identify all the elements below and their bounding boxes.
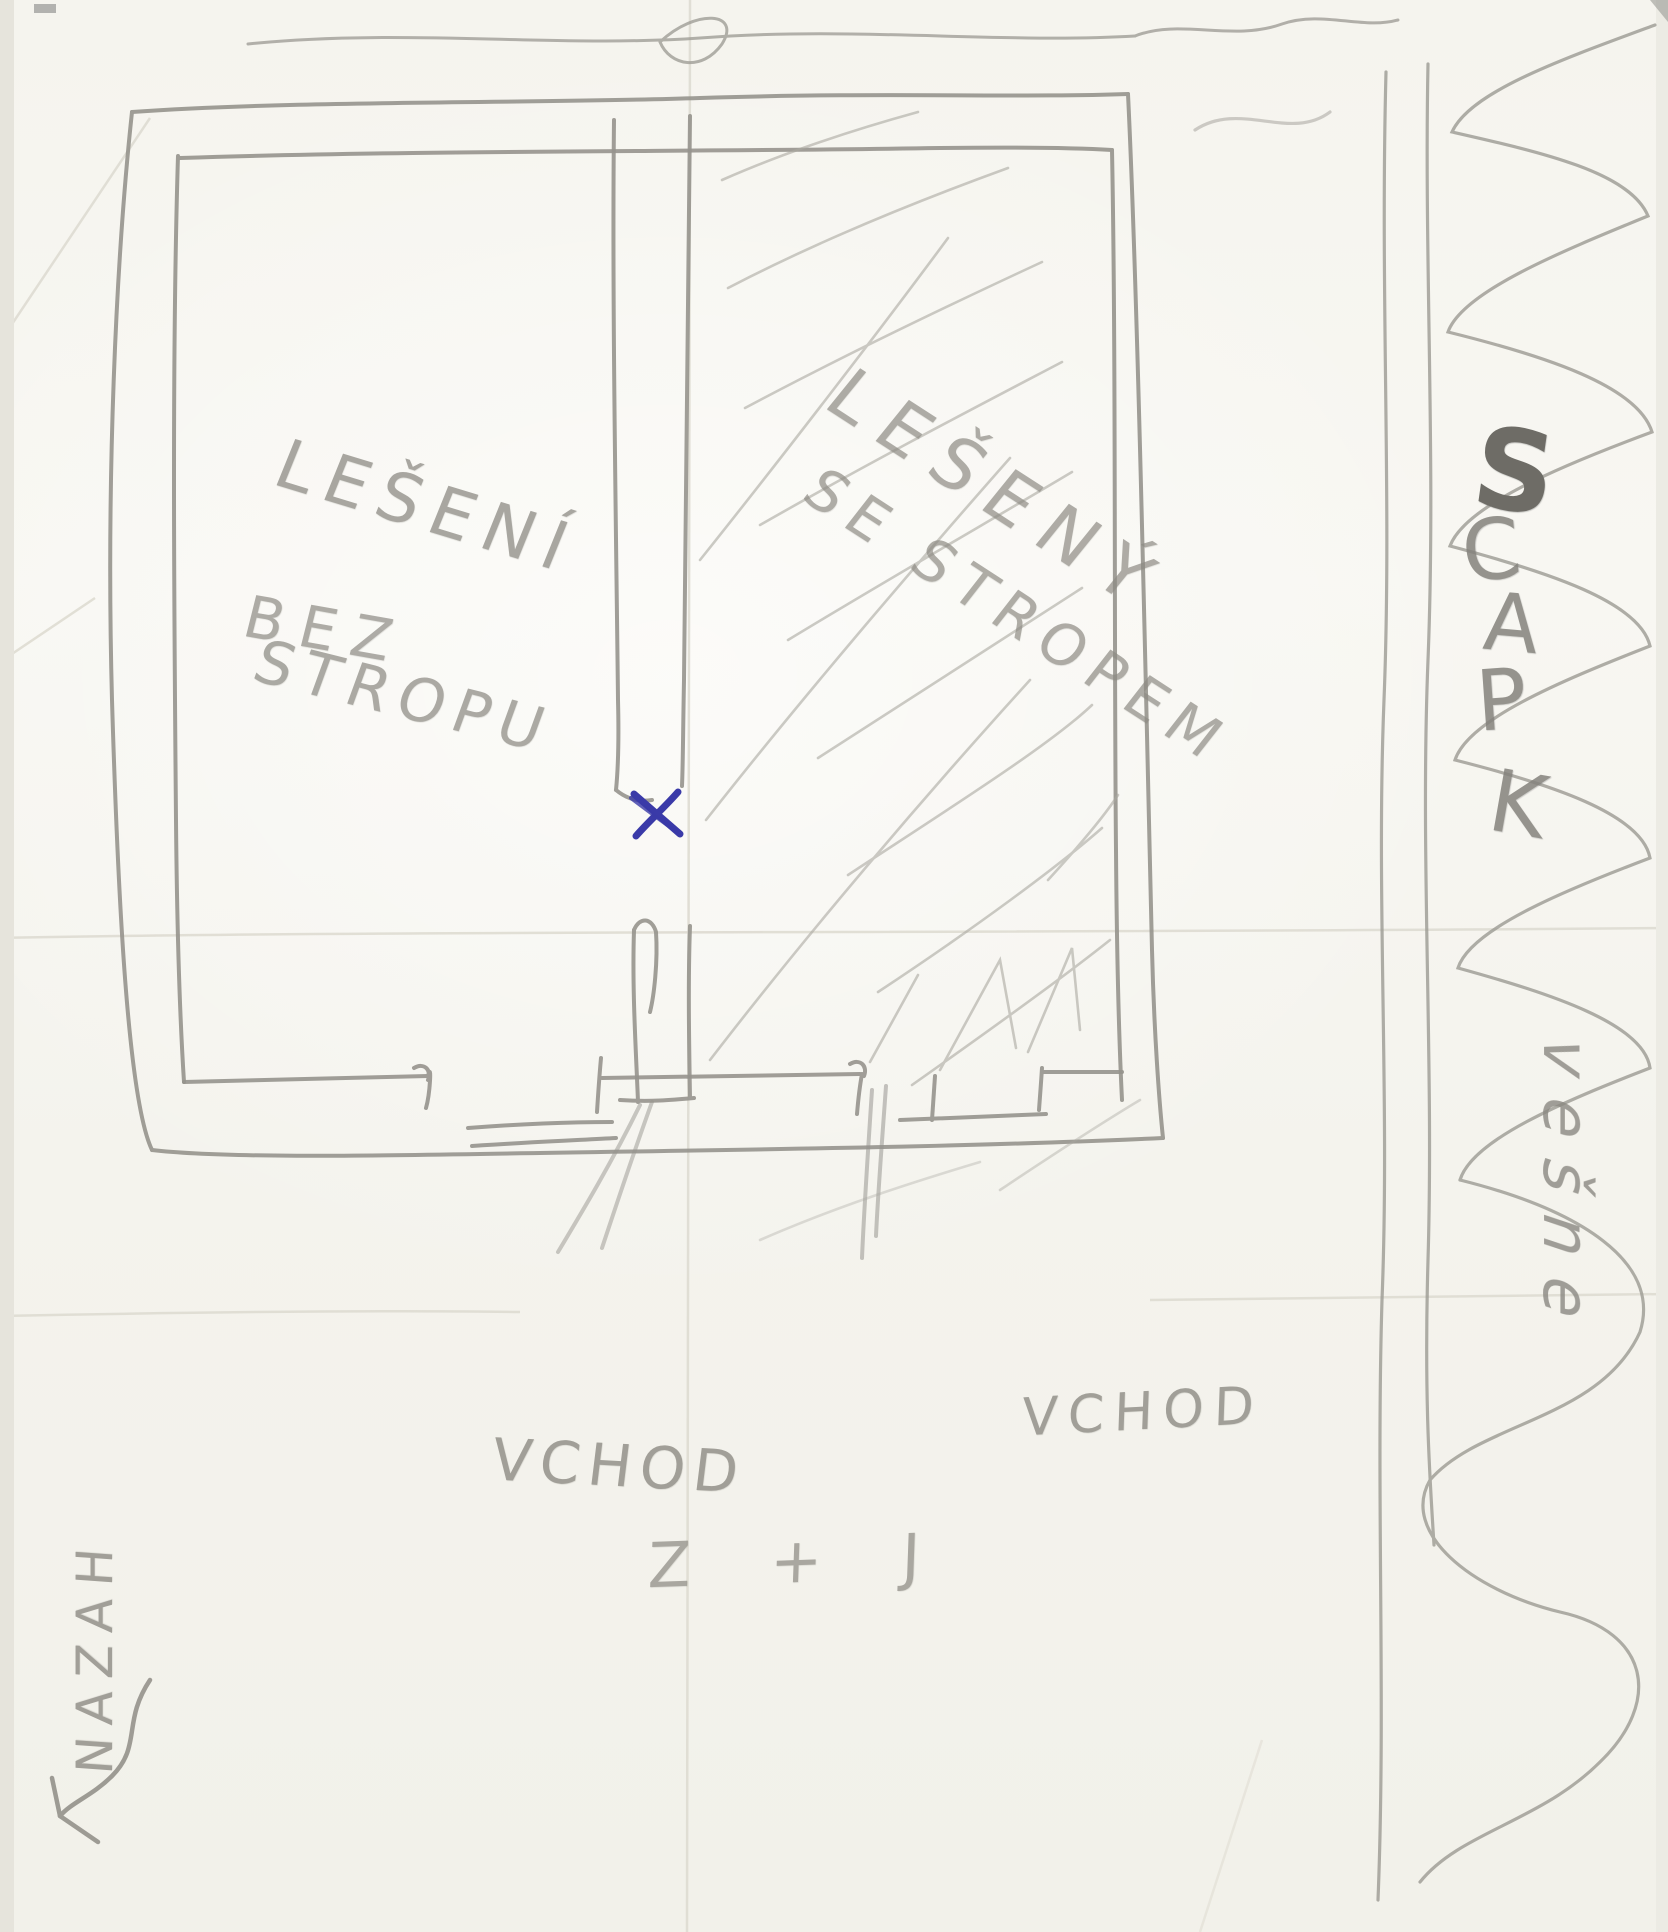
entrance-left-label: VCHOD <box>488 1426 750 1507</box>
blue-x-mark <box>631 792 680 836</box>
right-margin-scribbles <box>1195 25 1655 1900</box>
scan-edge-shadows <box>0 0 1668 1932</box>
top-margin-scribble <box>248 18 1398 62</box>
interior-divider-wall <box>613 116 694 1102</box>
right-margin-letter: K <box>1483 756 1554 855</box>
paper-creases <box>0 0 1668 1932</box>
scanned-pencil-floorplan: LEŠENÍ BEZ STROPU LEŠENÝ SE STROPEM VCHO… <box>0 0 1668 1932</box>
floorplan-linework <box>0 0 1668 1932</box>
right-margin-cursive-text: vešne <box>1528 1034 1602 1345</box>
left-margin-vertical-text: NAZAH <box>66 1534 124 1776</box>
door-openings <box>184 1058 1122 1258</box>
bottom-note: Z + J <box>647 1519 951 1603</box>
right-margin-letter: P <box>1473 654 1530 746</box>
right-margin-letter-column: S C A P K <box>1474 414 1624 850</box>
entrance-right-label: VCHOD <box>1021 1376 1265 1449</box>
